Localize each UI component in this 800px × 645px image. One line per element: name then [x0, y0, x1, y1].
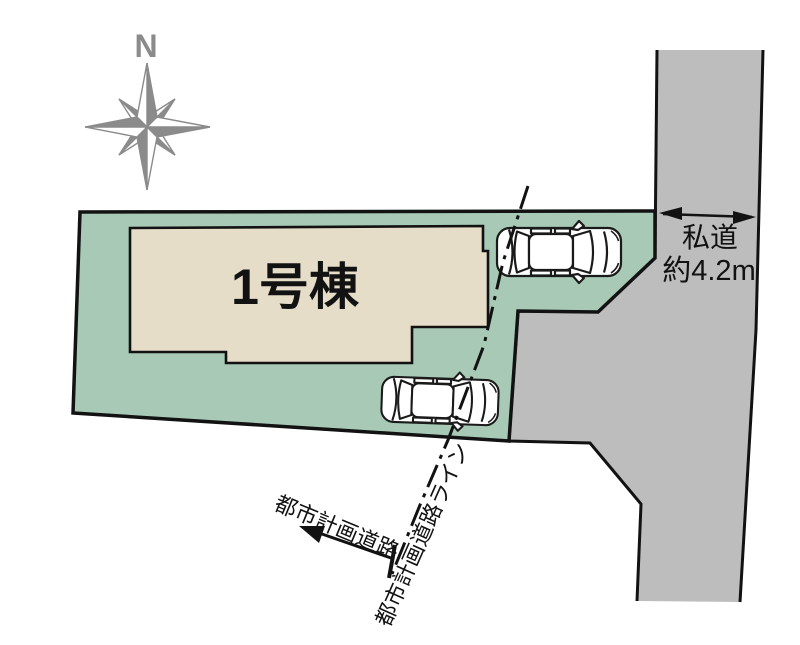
road-width-label-line1: 私道 [682, 222, 738, 253]
road-width-label-line2: 約4.2m [662, 254, 755, 287]
private-road-area [509, 50, 763, 602]
compass-rose: N [85, 28, 210, 190]
private-road-fill [509, 50, 763, 602]
car-icon-2 [381, 370, 500, 432]
site-plan-drawing: 1号棟 [0, 0, 800, 645]
car-icon-1 [497, 221, 621, 283]
building-label: 1号棟 [231, 259, 360, 315]
city-planning-road-label: 都市計画道路 [271, 491, 403, 565]
north-label: N [134, 28, 157, 64]
site-plan: 1号棟 [0, 0, 800, 645]
